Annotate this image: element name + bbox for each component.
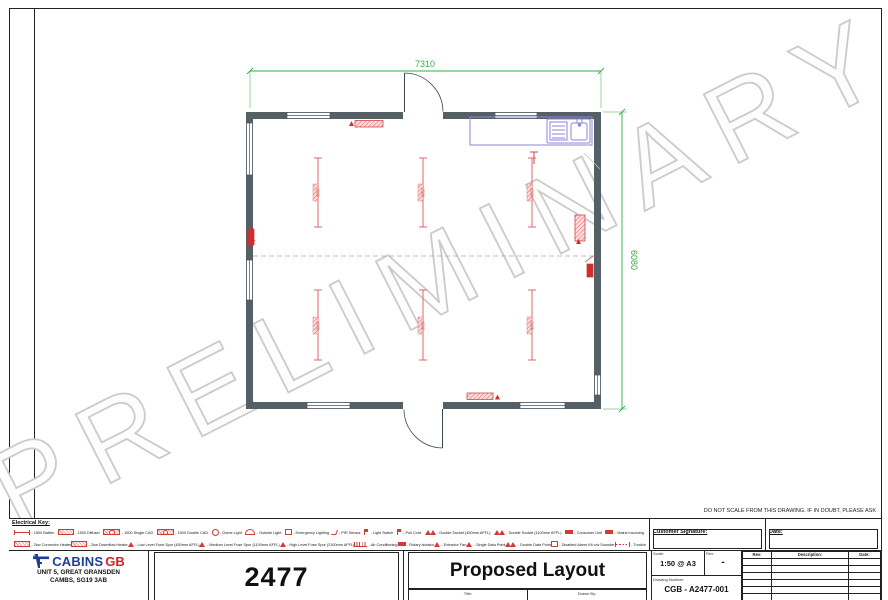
batten-light: 1500: [527, 158, 536, 227]
legend-item-label: - Trunking: [631, 542, 646, 547]
dome-symbol-icon: [245, 529, 255, 535]
svg-text:1500: 1500: [530, 188, 535, 198]
hatchc-symbol-icon: [103, 529, 120, 536]
rev-table-row: [743, 573, 881, 580]
hatch-symbol-icon: [58, 529, 74, 535]
legend-item: - 2kw Downflow Heater: [71, 541, 127, 547]
legend-item-label: - 1500 Batten: [32, 530, 55, 535]
company-cell: CABINSGB UNIT 5, GREAT GRANSDEN CAMBS, S…: [9, 551, 149, 600]
legend-item-label: - Rotary Isolator: [407, 542, 434, 547]
dimension-top: 7310: [247, 59, 604, 108]
double-socket: [585, 256, 593, 277]
window: [247, 123, 253, 175]
title-strip-left-label: Title:: [409, 590, 528, 600]
legend-item: - 2kw Convector Heater: [14, 541, 71, 547]
legend-item-label: - 2kw Downflow Heater: [89, 542, 128, 547]
box-symbol-icon: [551, 541, 558, 547]
rev-table-empty-cell: [849, 573, 881, 580]
double-socket: [247, 229, 255, 248]
box-symbol-icon: [285, 529, 292, 535]
tri-symbol-icon: [434, 542, 440, 547]
heaters: [349, 121, 585, 400]
line-symbol-icon: [14, 530, 30, 535]
sockets: [247, 229, 593, 277]
legend-item-label: - Outside Light: [257, 530, 282, 535]
solid-symbol-icon: [398, 542, 406, 546]
legend-item: - 1500 Double CAD: [157, 529, 208, 536]
batten-light: 1500: [418, 158, 427, 227]
legend-item-label: - Double Data Point: [518, 542, 551, 547]
rev-table-row: [743, 594, 881, 600]
svg-text:1500: 1500: [316, 188, 321, 198]
rev-table-header: Description:: [772, 552, 849, 559]
legend-item-label: - Consumer Unit: [574, 530, 602, 535]
legend-item: - Double Data Point: [505, 542, 551, 547]
legend-item-label: - 1500 Single CAD: [122, 530, 153, 535]
hatch-symbol-icon: [71, 541, 87, 547]
legend-item: - Single Data Point: [466, 542, 505, 547]
rev-table-empty-cell: [743, 580, 772, 587]
legend-item-label: - Low Level Fuse Spur (450mm AFFL): [135, 542, 199, 547]
walls: [246, 112, 601, 409]
legend-item: - Consumer Unit: [565, 530, 602, 535]
legend-item-label: - Air Conditioning: [369, 542, 398, 547]
rev-value: -: [705, 557, 741, 568]
key-row-1: - 1500 Batten- 1500 Diffuser- 1500 Singl…: [12, 526, 646, 538]
legend-item: - Double Socket (1100mm AFFL): [494, 530, 562, 535]
scale-label: Scale:: [653, 551, 664, 556]
rev-table-empty-cell: [772, 573, 849, 580]
heater: [575, 215, 585, 244]
legend-item: - Pull Cord: [397, 529, 421, 535]
drawing-title-cell: Proposed Layout Title: Drawn By:: [404, 551, 652, 600]
door-top: [405, 73, 444, 112]
rev-table-empty-cell: [772, 559, 849, 566]
legend-item-label: - Pull Cord: [403, 530, 421, 535]
rev-label: Rev:: [706, 551, 714, 556]
legend-item: - Low Level Fuse Spur (450mm AFFL): [128, 542, 200, 547]
legend-item-label: - Mains Incoming: [615, 530, 644, 535]
legend-item: - Emergency Lighting: [285, 529, 329, 535]
door-bottom: [404, 409, 443, 448]
scale-value: 1:50 @ A3: [652, 559, 704, 568]
company-address-line2: CAMBS, SG19 3AB: [9, 577, 148, 585]
drawing-title: Proposed Layout: [450, 560, 605, 582]
hatchc-symbol-icon: [157, 529, 174, 536]
signature-date-box[interactable]: [769, 529, 878, 549]
tri2-symbol-icon: [494, 530, 505, 535]
sink-unit: [470, 117, 592, 145]
window: [595, 375, 601, 395]
legend-item: - Rotary Isolator: [398, 542, 434, 547]
scale-rev-cell: Scale: 1:50 @ A3 Rev: - Drawing Number: …: [652, 551, 742, 600]
legend-item: - Disabled Alarm Kit c/w Sounder: [551, 541, 615, 547]
titleblock-lower: CABINSGB UNIT 5, GREAT GRANSDEN CAMBS, S…: [9, 550, 881, 600]
rev-table-header: Rev:: [743, 552, 772, 559]
revision-table-cell: Rev:Description:Date:: [742, 551, 881, 600]
rev-table-empty-cell: [772, 580, 849, 587]
customer-signature-box[interactable]: [653, 529, 762, 549]
rev-table-empty-cell: [743, 566, 772, 573]
rev-table-empty-cell: [849, 559, 881, 566]
job-number: 2477: [244, 562, 308, 593]
legend-item: - Light Switch: [364, 529, 393, 535]
job-number-cell: 2477: [149, 551, 404, 600]
legend-item: - Dome Light: [212, 529, 242, 536]
sheet-margin-line: [34, 8, 35, 599]
rev-table-header: Date:: [849, 552, 881, 559]
svg-text:1500: 1500: [530, 321, 535, 331]
batten-light: 1500: [418, 290, 427, 360]
legend-item-label: - Single Data Point: [474, 542, 506, 547]
drawing-number: CGB - A2477-001: [652, 585, 741, 594]
windows: [247, 113, 601, 409]
rev-table-empty-cell: [772, 594, 849, 600]
flag-symbol-icon: [364, 529, 369, 535]
titleblock-upper: Electrical Key: - 1500 Batten- 1500 Diff…: [9, 518, 881, 551]
tri-symbol-icon: [466, 542, 472, 547]
revision-table-body: Rev:Description:Date:: [743, 552, 881, 600]
drawing-number-label: Drawing Number:: [653, 577, 684, 582]
do-not-scale-notice: DO NOT SCALE FROM THIS DRAWING. IF IN DO…: [704, 508, 876, 514]
drawing-sheet: PRELIMINARY: [0, 0, 888, 600]
company-name-red: GB: [105, 554, 125, 569]
rev-table-row: [743, 580, 881, 587]
flag-symbol-icon: [397, 529, 402, 535]
legend-item-label: - Extractor Fan: [441, 542, 466, 547]
tri-symbol-icon: [280, 542, 286, 547]
tri2-symbol-icon: [505, 542, 516, 547]
batten-light: 1500: [313, 290, 322, 360]
legend-item: - PIR Sensor: [332, 530, 360, 535]
dim-height-label: 6080: [629, 250, 639, 270]
rev-table-empty-cell: [849, 587, 881, 594]
tick-symbol-icon: [332, 530, 339, 535]
legend-item-label: - Emergency Lighting: [293, 530, 329, 535]
dim-width-label: 7310: [415, 59, 435, 69]
legend-item: - Extractor Fan: [434, 542, 466, 547]
batten-light: 1500: [313, 158, 322, 227]
rev-table-empty-cell: [849, 566, 881, 573]
legend-item: - Air Conditioning: [354, 542, 397, 547]
rev-table-empty-cell: [743, 587, 772, 594]
bracket-symbol-icon: [615, 542, 630, 547]
heater: [467, 393, 500, 400]
legend-item: - Outside Light: [245, 529, 281, 535]
legend-item: - 1500 Batten: [14, 530, 54, 535]
svg-text:1500: 1500: [421, 188, 426, 198]
legend-item: - 1500 Single CAD: [103, 529, 153, 536]
legend-item-label: - 1500 Diffuser: [75, 530, 100, 535]
legend-item: - Double Socket (450mm AFFL): [425, 530, 491, 535]
cabinsgb-logo-icon: [32, 553, 50, 569]
key-row-2: - 2kw Convector Heater- 2kw Downflow Hea…: [12, 538, 646, 550]
legend-item-label: - PIR Sensor: [339, 530, 361, 535]
rev-table-empty-cell: [743, 573, 772, 580]
floor-plan: 7310 6080 1500 1500 1500 1500: [230, 40, 650, 480]
electrical-key: Electrical Key: - 1500 Batten- 1500 Diff…: [9, 519, 650, 551]
window: [520, 403, 565, 409]
legend-item: - Trunking: [615, 542, 646, 547]
window: [247, 260, 253, 300]
window: [287, 113, 330, 119]
legend-item-label: - Light Switch: [371, 530, 394, 535]
company-name-blue: CABINS: [52, 554, 103, 569]
rev-table-empty-cell: [772, 566, 849, 573]
rev-table-empty-cell: [772, 587, 849, 594]
legend-item-label: - Double Socket (450mm AFFL): [437, 530, 490, 535]
tri-symbol-icon: [128, 542, 134, 547]
customer-signature-cell: Customer Signature:: [650, 519, 766, 551]
window: [307, 403, 350, 409]
heater: [349, 121, 383, 128]
legend-item-label: - 2kw Convector Heater: [32, 542, 72, 547]
window: [495, 113, 537, 119]
rev-table-empty-cell: [743, 559, 772, 566]
company-address-line1: UNIT 5, GREAT GRANSDEN: [9, 569, 148, 577]
tri2-symbol-icon: [425, 530, 436, 535]
batten-light: 1500: [527, 290, 536, 360]
comb-symbol-icon: [354, 542, 367, 547]
legend-item-label: - High Level Fuse Spur (2100mm AFFL): [287, 542, 354, 547]
legend-item: - Mains Incoming: [605, 530, 643, 535]
legend-item-label: - Double Socket (1100mm AFFL): [506, 530, 561, 535]
legend-item: - 1500 Diffuser: [58, 529, 100, 535]
light-battens: 1500 1500 1500 1500 1500 1500: [313, 158, 536, 360]
hatch-symbol-icon: [14, 541, 30, 547]
legend-item-label: - Dome Light: [220, 530, 242, 535]
title-strip: Title: Drawn By:: [408, 589, 647, 600]
solid-symbol-icon: [605, 530, 613, 534]
title-strip-right-label: Drawn By:: [528, 590, 646, 600]
svg-text:1500: 1500: [316, 321, 321, 331]
signature-date-cell: Date:: [766, 519, 881, 551]
legend-item-label: - Medium Level Fuse Spur (1100mm AFFL): [207, 542, 280, 547]
rev-table-empty-cell: [743, 594, 772, 600]
rev-box: Rev: -: [705, 551, 741, 576]
legend-item-label: - Disabled Alarm Kit c/w Sounder: [559, 542, 614, 547]
scale-box: Scale: 1:50 @ A3: [652, 551, 705, 576]
legend-item: - High Level Fuse Spur (2100mm AFFL): [280, 542, 355, 547]
dimension-right: 6080: [603, 109, 639, 412]
rev-table-empty-cell: [849, 594, 881, 600]
legend-item-label: - 1500 Double CAD: [175, 530, 208, 535]
tri-symbol-icon: [199, 542, 205, 547]
circle-symbol-icon: [212, 529, 219, 536]
solid-symbol-icon: [565, 530, 573, 534]
revision-table: Rev:Description:Date:: [742, 551, 881, 600]
rev-table-row: [743, 559, 881, 566]
rev-table-row: [743, 587, 881, 594]
svg-text:1500: 1500: [421, 321, 426, 331]
legend-item: - Medium Level Fuse Spur (1100mm AFFL): [199, 542, 279, 547]
rev-table-empty-cell: [849, 580, 881, 587]
rev-table-row: [743, 566, 881, 573]
